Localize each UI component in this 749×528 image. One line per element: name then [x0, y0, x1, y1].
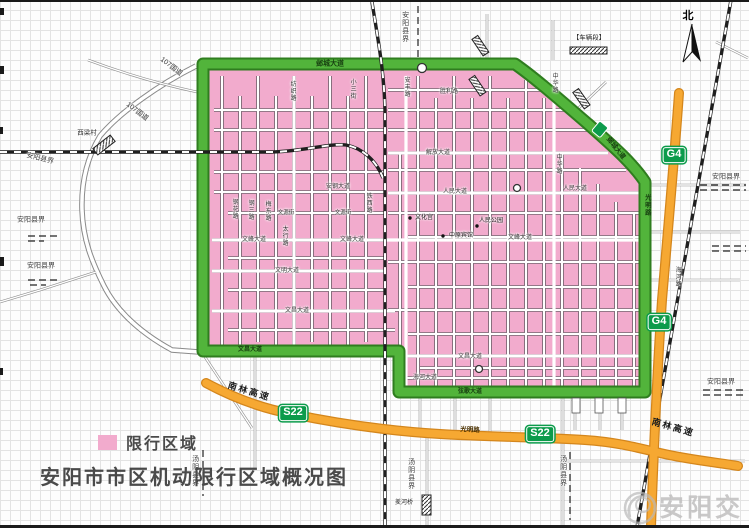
legend-swatch-restricted-area [98, 435, 117, 450]
legend: 限行区域 [98, 430, 198, 454]
north-arrow-icon [683, 24, 701, 62]
legend-label: 限行区域 [126, 430, 198, 454]
watermark-text: 安阳交警 [659, 488, 749, 528]
page-title: 安阳市市区机动限行区域概况图 [40, 461, 348, 490]
map-canvas: 107国道107国道西梁村安阳县界安阳县界安阳县界安阳县界安阳县界安阳县界汤阴县… [0, 0, 749, 528]
stop-label-boxes [572, 398, 626, 413]
